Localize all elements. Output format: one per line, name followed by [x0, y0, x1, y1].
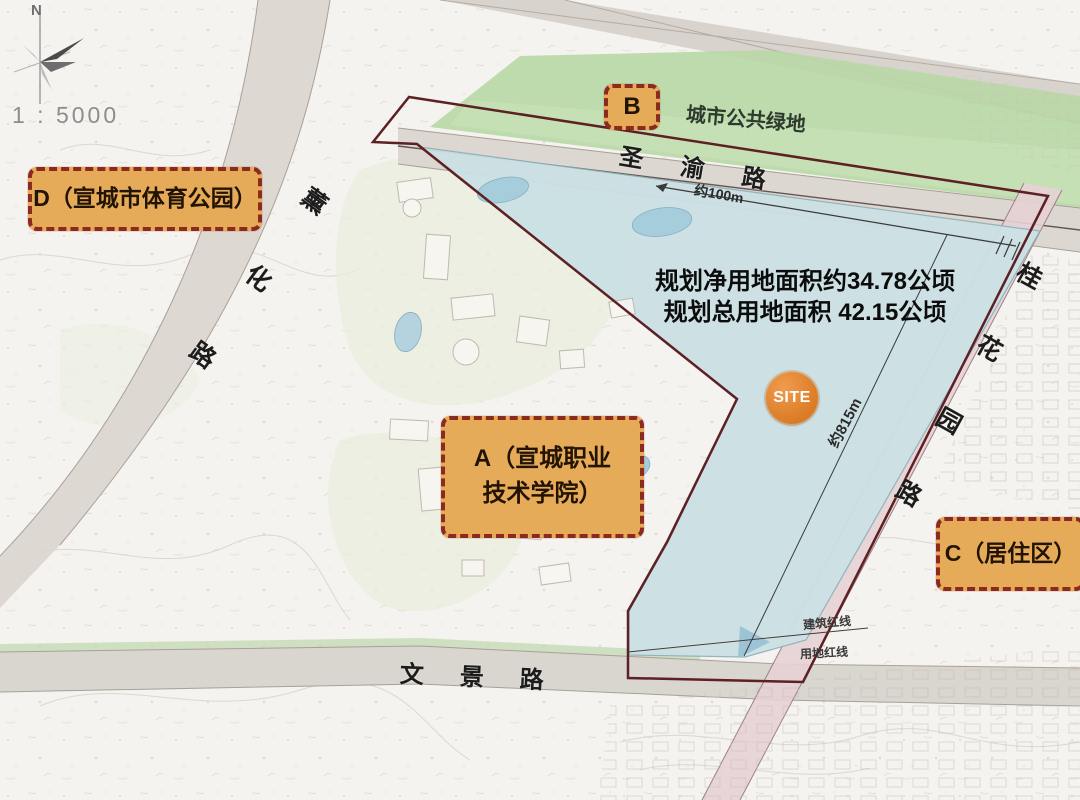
- zone-a-line2: 技术学院）: [483, 477, 603, 512]
- planning-map: N 1 : 5000 D（宣城市体育公园） B A（宣城职业 技术学院） C（居…: [0, 0, 1080, 800]
- zone-c-label: C（居住区）: [936, 517, 1080, 591]
- zone-a-line1: A（宣城职业: [474, 442, 611, 477]
- scale-label: 1 : 5000: [12, 102, 119, 129]
- planning-stats-line1: 规划净用地面积约34.78公顷: [610, 266, 1000, 297]
- zone-b-label: B: [604, 84, 660, 130]
- zone-d-label: D（宣城市体育公园）: [28, 167, 262, 231]
- landuse-redline-label: 用地红线: [800, 643, 849, 662]
- zone-a-label: A（宣城职业 技术学院）: [441, 416, 644, 538]
- planning-stats: 规划净用地面积约34.78公顷 规划总用地面积 42.15公顷: [610, 266, 1000, 328]
- planning-stats-line2: 规划总用地面积 42.15公顷: [610, 297, 1000, 328]
- north-label: N: [31, 2, 42, 19]
- site-marker: SITE: [766, 372, 818, 424]
